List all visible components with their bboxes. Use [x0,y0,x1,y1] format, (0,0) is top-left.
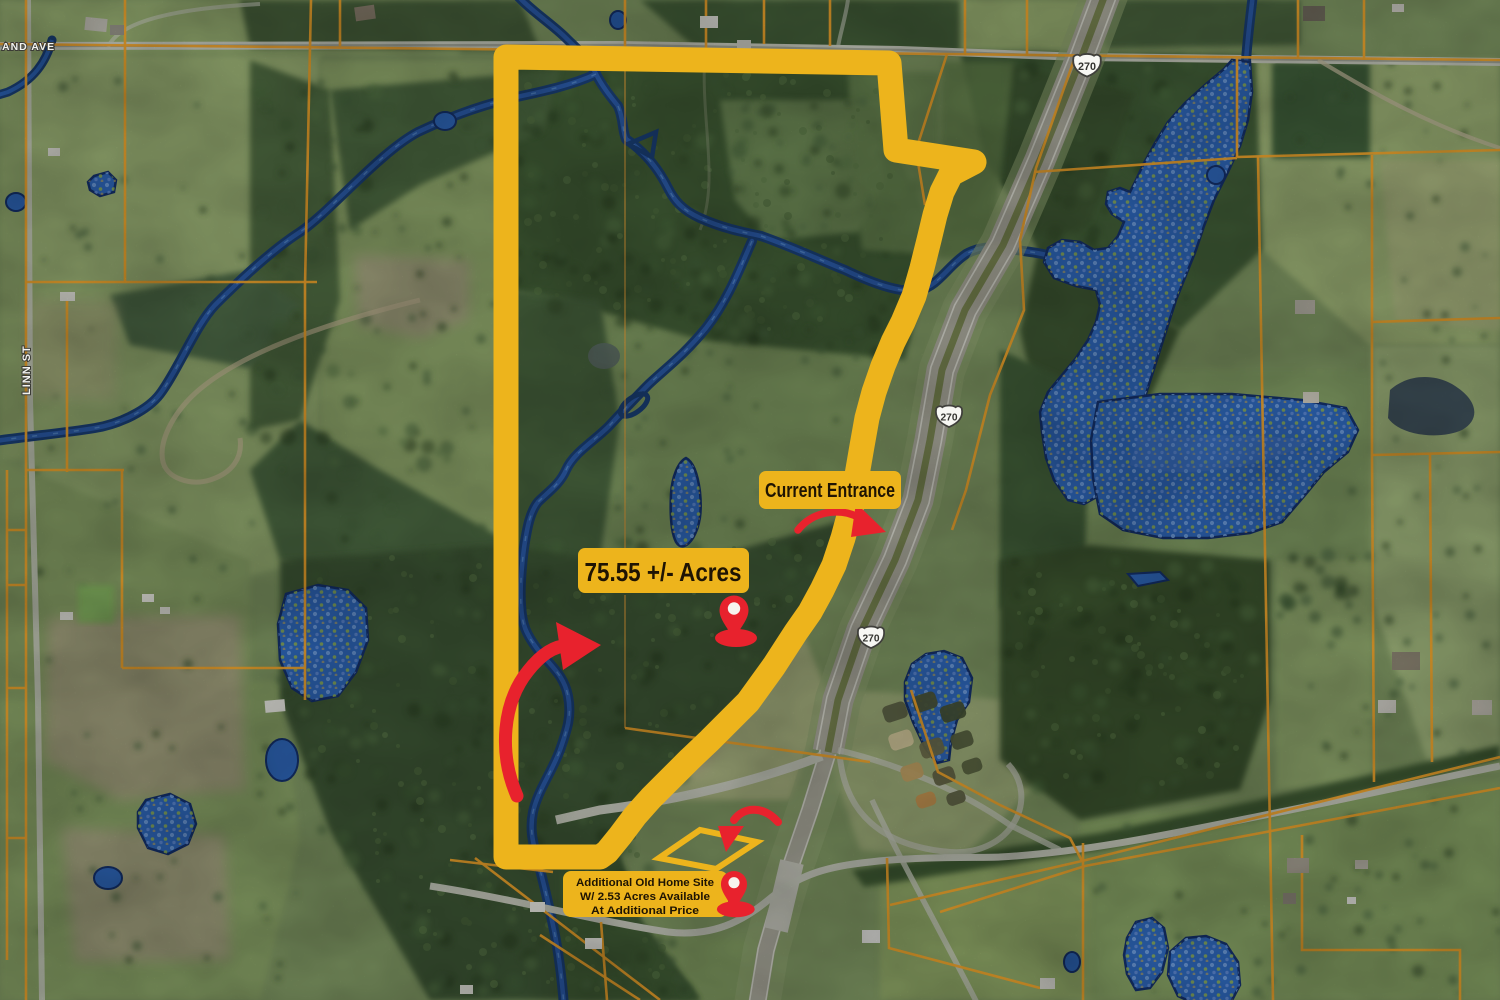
svg-text:270: 270 [1078,61,1096,73]
svg-text:LINN ST: LINN ST [21,345,33,395]
svg-text:270: 270 [863,634,880,645]
svg-text:Current Entrance: Current Entrance [765,480,895,502]
svg-text:At Additional Price: At Additional Price [591,905,699,917]
svg-text:W/ 2.53 Acres Available: W/ 2.53 Acres Available [580,891,710,903]
svg-text:75.55 +/- Acres: 75.55 +/- Acres [585,557,742,587]
svg-text:270: 270 [941,413,958,424]
svg-text:Additional Old Home Site: Additional Old Home Site [576,877,714,889]
svg-text:AND AVE: AND AVE [2,41,55,53]
